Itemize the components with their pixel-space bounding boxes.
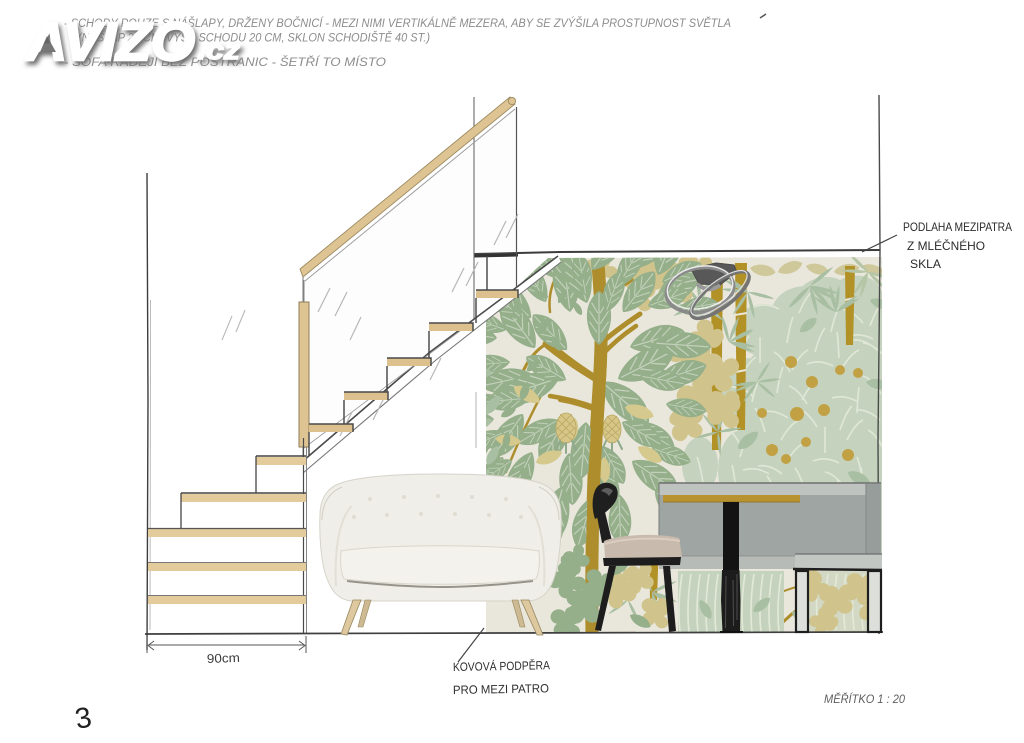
svg-text:PODLAHA MEZIPATRA: PODLAHA MEZIPATRA (903, 220, 1012, 234)
svg-text:Z MLÉČNÉHO: Z MLÉČNÉHO (907, 238, 985, 253)
svg-text:SKLA: SKLA (910, 257, 941, 271)
svg-text:MĚŘÍTKO 1 : 20: MĚŘÍTKO 1 : 20 (824, 693, 906, 706)
svg-text:.cz: .cz (197, 35, 241, 65)
svg-text:PRO MEZI PATRO: PRO MEZI PATRO (453, 681, 549, 697)
svg-text:KOVOVÁ PODPĚRA: KOVOVÁ PODPĚRA (453, 657, 550, 674)
svg-text:90cm: 90cm (207, 651, 240, 666)
